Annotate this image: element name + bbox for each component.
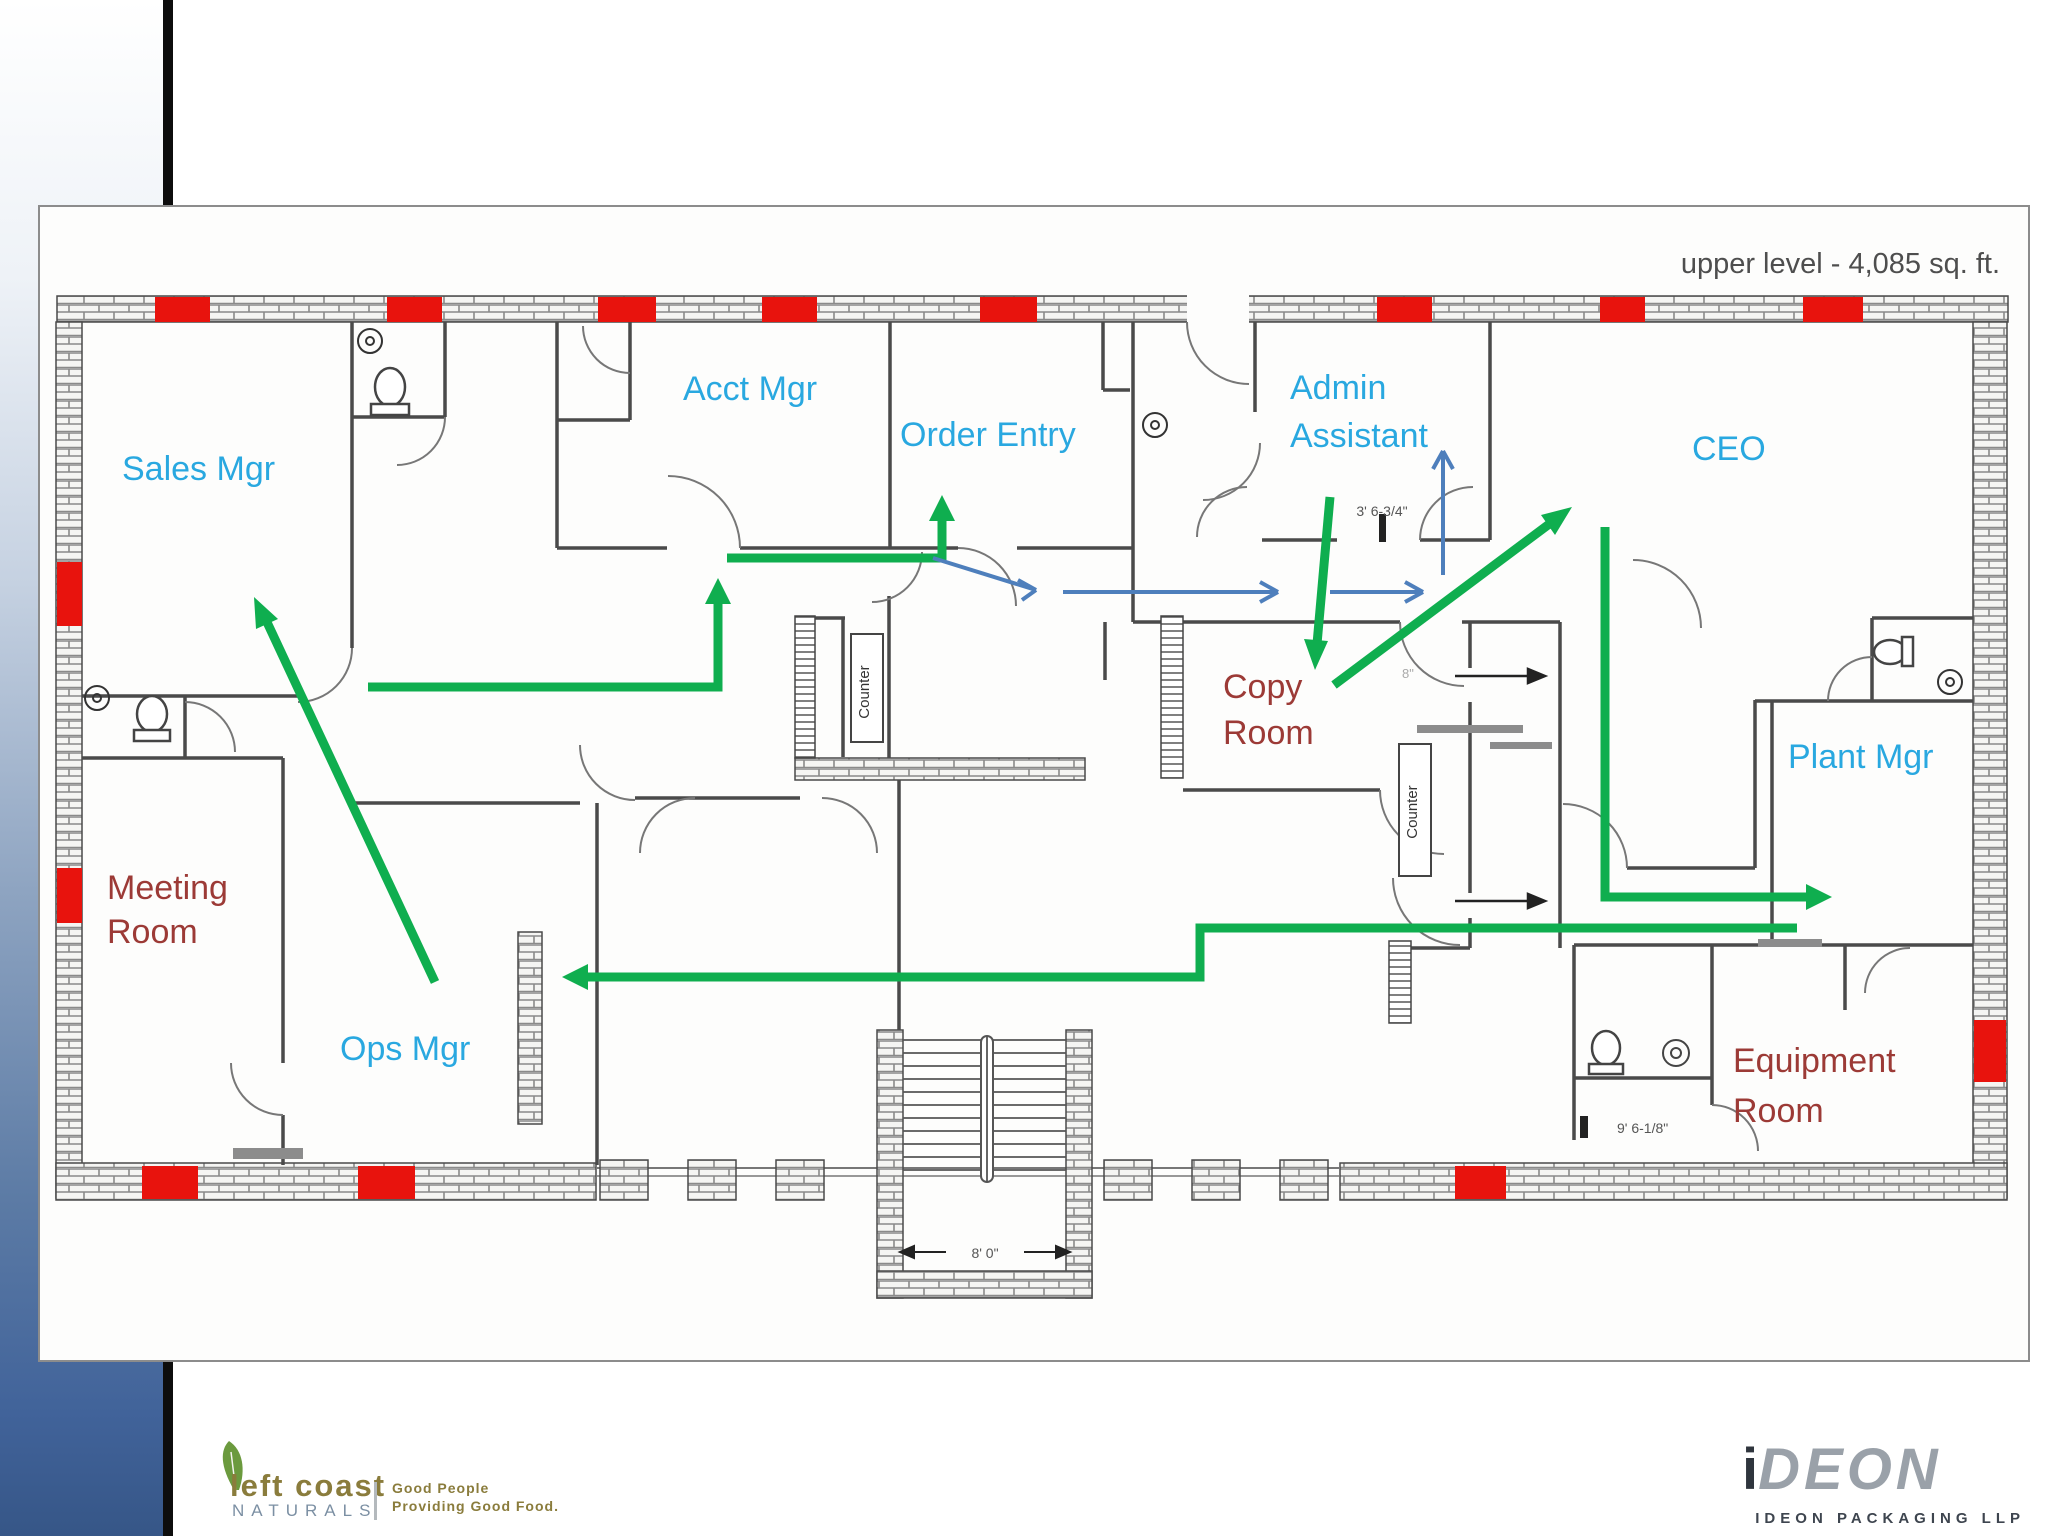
counter-left-label: Counter xyxy=(856,665,873,718)
room-label-order: Order Entry xyxy=(900,412,1076,458)
plan-title: upper level - 4,085 sq. ft. xyxy=(1590,248,2000,281)
stairs xyxy=(903,1036,1066,1182)
room-label-ops: Ops Mgr xyxy=(340,1026,470,1072)
toilet-icon xyxy=(134,368,1913,1074)
room-label-equipment: Equipment Room xyxy=(1733,1036,1896,1136)
counter-right-label: Counter xyxy=(1404,785,1421,838)
slide: Counter Counter xyxy=(0,0,2048,1536)
room-label-sales: Sales Mgr xyxy=(122,446,275,492)
room-label-admin-line1: Admin xyxy=(1290,364,1428,412)
dim-washroom: 9' 6-1/8" xyxy=(1617,1120,1668,1136)
leftcoast-tagline2: Providing Good Food. xyxy=(392,1498,559,1514)
dim-copy-door: 8" xyxy=(1402,666,1414,681)
room-label-plant: Plant Mgr xyxy=(1788,734,1934,780)
floorplan-drawing: Counter Counter xyxy=(0,0,2048,1536)
green-flow-arrows xyxy=(254,495,1832,990)
room-label-meeting-line1: Meeting xyxy=(107,866,228,910)
room-label-ceo: CEO xyxy=(1692,426,1766,472)
leftcoast-naturals: NATURALS xyxy=(232,1501,377,1521)
room-label-meeting: Meeting Room xyxy=(107,866,228,954)
leftcoast-tagline1: Good People xyxy=(392,1480,489,1496)
dim-stair-width: 8' 0" xyxy=(971,1245,998,1261)
room-label-copy-line2: Room xyxy=(1223,710,1314,756)
leftcoast-divider xyxy=(374,1482,377,1520)
ideon-logo-deon: DEON xyxy=(1758,1437,1942,1502)
room-label-equipment-line2: Room xyxy=(1733,1086,1896,1136)
blue-flow-arrows xyxy=(933,451,1453,602)
room-label-admin-line2: Assistant xyxy=(1290,412,1428,460)
room-label-copy: Copy Room xyxy=(1223,664,1314,756)
ideon-logo: iDEON xyxy=(1742,1440,1942,1500)
leftcoast-name: left coast xyxy=(230,1468,386,1504)
ideon-subtitle: IDEON PACKAGING LLP xyxy=(1665,1510,2025,1527)
dim-admin-door: 3' 6-3/4" xyxy=(1356,503,1407,519)
desks xyxy=(233,514,1822,1159)
door-closer-icon xyxy=(85,329,1962,710)
room-label-equipment-line1: Equipment xyxy=(1733,1036,1896,1086)
ideon-logo-i: i xyxy=(1742,1437,1758,1502)
sink-icon xyxy=(1663,1040,1689,1066)
room-label-admin: Admin Assistant xyxy=(1290,364,1428,460)
room-label-meeting-line2: Room xyxy=(107,910,228,954)
room-label-copy-line1: Copy xyxy=(1223,664,1314,710)
room-label-acct: Acct Mgr xyxy=(683,366,817,412)
counter-left: Counter xyxy=(851,634,883,742)
counter-right: Counter xyxy=(1399,744,1431,876)
